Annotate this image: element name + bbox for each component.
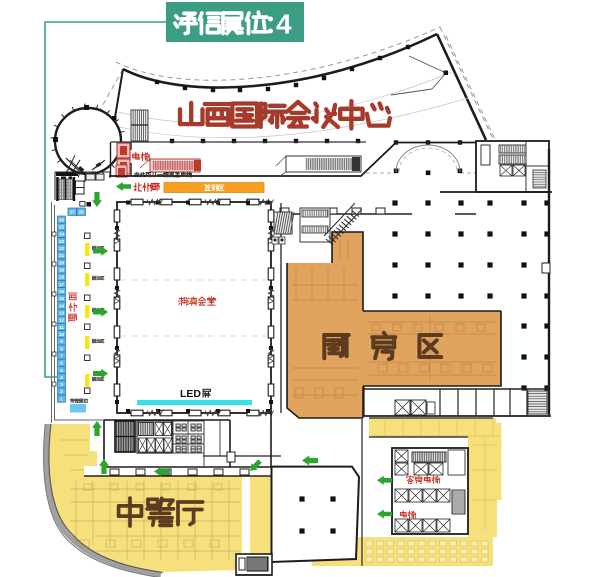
svg-text:10: 10 (59, 332, 65, 337)
svg-text:26: 26 (59, 217, 65, 222)
svg-text:22: 22 (59, 246, 65, 251)
svg-text:6: 6 (60, 361, 63, 366)
svg-text:17: 17 (59, 282, 65, 287)
svg-text:3: 3 (60, 382, 63, 387)
svg-text:19: 19 (59, 268, 65, 273)
svg-text:4: 4 (276, 9, 292, 40)
svg-text:9: 9 (60, 339, 63, 344)
svg-text:7: 7 (60, 353, 63, 358)
svg-text:18: 18 (59, 275, 65, 280)
svg-text:11: 11 (59, 325, 64, 330)
svg-text:13: 13 (59, 311, 65, 316)
svg-text:27: 27 (69, 210, 75, 215)
svg-text:5: 5 (60, 368, 63, 373)
svg-text:20: 20 (59, 260, 65, 265)
svg-text:4: 4 (60, 375, 63, 380)
svg-text:LED: LED (180, 388, 201, 400)
svg-text:1: 1 (60, 396, 63, 401)
svg-text:24: 24 (59, 232, 65, 237)
svg-text:15: 15 (59, 296, 65, 301)
svg-text:8: 8 (60, 346, 63, 351)
svg-text:16: 16 (59, 289, 65, 294)
svg-text:2: 2 (60, 389, 63, 394)
svg-text:23: 23 (59, 239, 65, 244)
svg-text:28: 28 (78, 210, 84, 215)
svg-text:14: 14 (59, 303, 65, 308)
svg-text:12: 12 (59, 318, 65, 323)
svg-text:21: 21 (59, 253, 65, 258)
svg-text:25: 25 (59, 225, 65, 230)
